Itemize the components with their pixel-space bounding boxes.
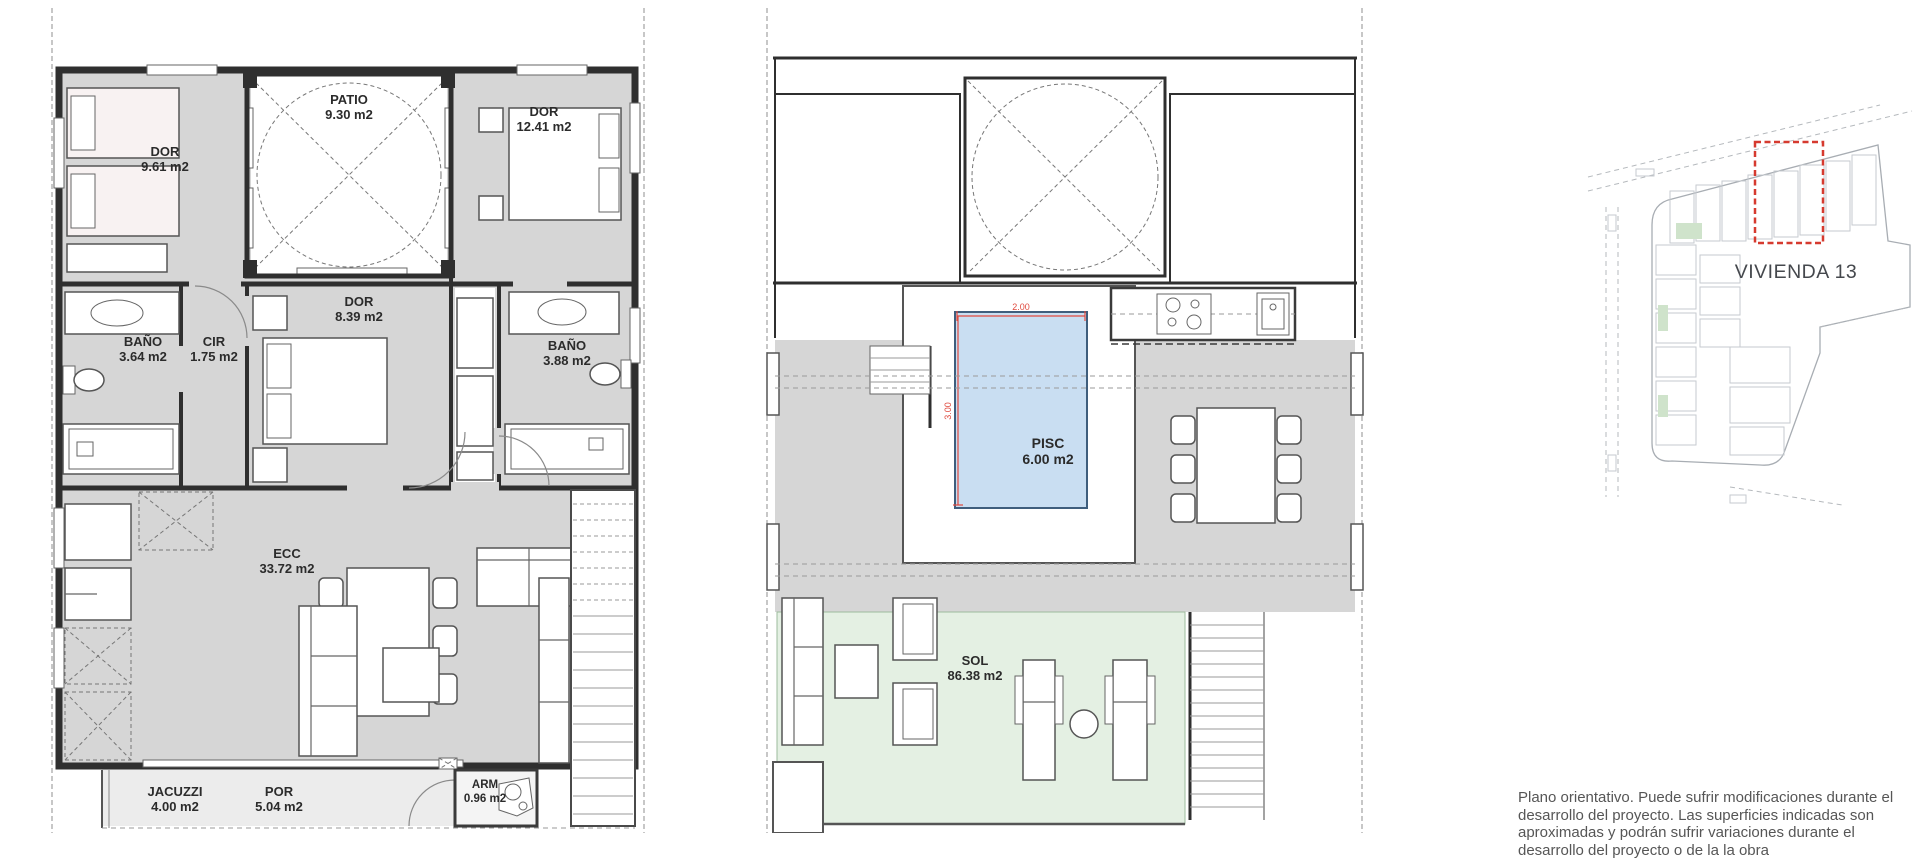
room-label-sol: SOL	[962, 653, 989, 668]
room-label-dor2: DOR	[530, 104, 560, 119]
pool-area: 2.00 3.00 PISC 6.00 m2	[870, 286, 1135, 563]
room-area-cir: 1.75 m2	[190, 349, 238, 364]
room-label-dor3: DOR	[345, 294, 375, 309]
room-area-dor2: 12.41 m2	[517, 119, 572, 134]
site-green-patch	[1676, 223, 1702, 239]
room-label-jacuzzi: JACUZZI	[148, 784, 203, 799]
pool-dim-height: 3.00	[943, 402, 953, 420]
solarium-notch	[773, 762, 823, 833]
room-label-patio: PATIO	[330, 92, 368, 107]
solarium-stairs	[1190, 612, 1264, 820]
closets	[457, 298, 493, 480]
bedroom1-furniture	[67, 88, 179, 272]
street-lines	[1588, 105, 1912, 505]
room-area-patio: 9.30 m2	[325, 107, 373, 122]
room-label-por: POR	[265, 784, 294, 799]
room-label-bano2: BAÑO	[548, 338, 586, 353]
floor-plan-solarium-level: 2.00 3.00 PISC 6.00 m2	[765, 8, 1365, 833]
room-area-jacuzzi: 4.00 m2	[151, 799, 199, 814]
pool-dim-width: 2.00	[1012, 302, 1030, 312]
outdoor-dining	[1171, 408, 1301, 523]
terrace-stairs	[870, 346, 930, 394]
room-label-dor1: DOR	[151, 144, 181, 159]
pool	[955, 312, 1087, 508]
solarium: SOL 86.38 m2	[773, 598, 1185, 833]
building-footprint	[1652, 145, 1910, 465]
room-area-por: 5.04 m2	[255, 799, 303, 814]
unit-name-label: VIVIENDA 13	[1735, 261, 1858, 283]
site-key-plan: VIVIENDA 13	[1580, 95, 1920, 515]
room-area-arm: 0.96 m2	[464, 793, 506, 805]
room-label-arm: ARM	[472, 779, 498, 791]
site-green-patch	[1658, 395, 1668, 417]
unit-highlight-box	[1755, 142, 1823, 243]
room-area-pisc: 6.00 m2	[1022, 451, 1074, 467]
room-area-dor1: 9.61 m2	[141, 159, 189, 174]
outdoor-kitchen	[1111, 288, 1295, 344]
floor-plan-main-level: DOR 9.61 m2 PATIO 9.30 m2 DOR 12.41 m2 D…	[47, 8, 647, 833]
room-area-bano1: 3.64 m2	[119, 349, 167, 364]
room-label-cir: CIR	[203, 334, 226, 349]
room-area-bano2: 3.88 m2	[543, 353, 591, 368]
room-area-ecc: 33.72 m2	[260, 561, 315, 576]
room-label-bano1: BAÑO	[124, 334, 162, 349]
room-label-pisc: PISC	[1032, 435, 1065, 451]
disclaimer-text: Plano orientativo. Puede sufrir modifica…	[1518, 789, 1920, 859]
room-label-ecc: ECC	[273, 546, 301, 561]
room-area-dor3: 8.39 m2	[335, 309, 383, 324]
site-green-patch	[1658, 305, 1668, 331]
staircase	[571, 490, 635, 826]
room-area-sol: 86.38 m2	[948, 668, 1003, 683]
